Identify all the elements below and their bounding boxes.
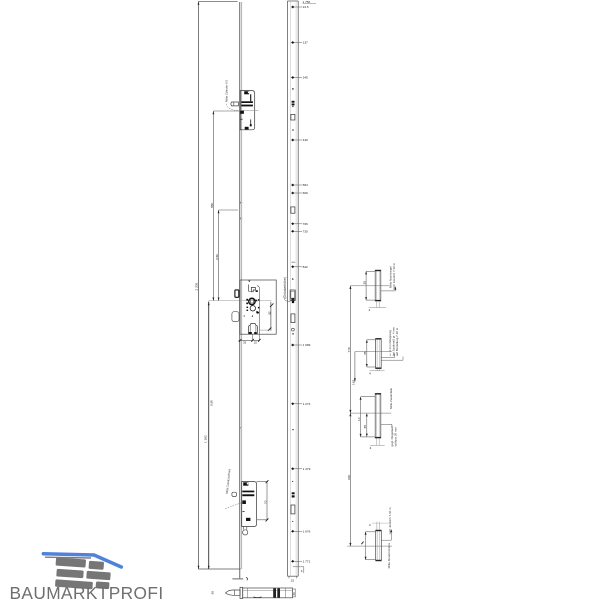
svg-text:1 392: 1 392	[203, 435, 207, 443]
svg-text:70: 70	[264, 500, 268, 504]
svg-text:BAUMARKTPROFI: BAUMARKTPROFI	[10, 583, 164, 600]
svg-text:auf Bestellung 7-10 m: auf Bestellung 7-10 m	[395, 327, 399, 356]
svg-text:(Drückerhöhe): (Drückerhöhe)	[283, 277, 287, 299]
svg-text:776: 776	[347, 347, 351, 352]
svg-text:1 676: 1 676	[303, 530, 311, 534]
svg-text:4: 4	[369, 308, 371, 312]
svg-text:584: 584	[303, 183, 308, 187]
svg-text:15: 15	[291, 579, 295, 583]
svg-text:1 479: 1 479	[303, 467, 311, 471]
svg-text:35: 35	[243, 341, 247, 345]
svg-text:4: 4	[370, 446, 372, 450]
svg-text:9.50: 9.50	[210, 400, 214, 406]
svg-text:440: 440	[303, 138, 308, 142]
svg-text:730: 730	[303, 230, 308, 234]
svg-text:1 274: 1 274	[303, 402, 311, 406]
svg-text:4: 4	[301, 569, 303, 573]
svg-text:zapf. Einstich 7-10 m: zapf. Einstich 7-10 m	[388, 507, 392, 535]
svg-text:14: 14	[357, 417, 361, 421]
svg-text:1 750: 1 750	[303, 0, 311, 4]
svg-text:842: 842	[303, 265, 308, 269]
svg-text:20: 20	[292, 592, 296, 596]
svg-text:schluss 20 mm: schluss 20 mm	[393, 427, 397, 447]
svg-text:9.50: 9.50	[215, 254, 219, 260]
svg-text:35: 35	[363, 425, 367, 429]
svg-text:zapf. Einstich 7-10 m: zapf. Einstich 7-10 m	[392, 262, 396, 290]
svg-text:Mitte Zusatzfalle: Mitte Zusatzfalle	[389, 388, 393, 409]
svg-text:2 205: 2 205	[195, 282, 199, 290]
svg-text:245: 245	[303, 76, 308, 80]
svg-text:35: 35	[363, 351, 367, 355]
svg-text:1 089: 1 089	[303, 343, 311, 347]
svg-text:940: 940	[347, 475, 351, 480]
svg-text:25: 25	[254, 341, 258, 345]
svg-text:609: 609	[303, 191, 308, 195]
svg-text:Mitte Zusatzschloss: Mitte Zusatzschloss	[387, 542, 391, 568]
svg-text:92: 92	[267, 311, 271, 315]
svg-text:24.5: 24.5	[303, 5, 309, 9]
svg-text:162: 162	[351, 380, 355, 385]
svg-text:4: 4	[369, 372, 371, 376]
svg-text:4: 4	[369, 523, 371, 527]
svg-text:850: 850	[210, 203, 214, 208]
svg-text:35: 35	[211, 591, 215, 595]
svg-text:35: 35	[363, 281, 367, 285]
svg-text:1 771: 1 771	[303, 560, 311, 564]
svg-text:706: 706	[303, 222, 308, 226]
svg-text:Mitte Zylinder 9.5: Mitte Zylinder 9.5	[225, 79, 229, 102]
svg-text:137: 137	[303, 41, 308, 45]
